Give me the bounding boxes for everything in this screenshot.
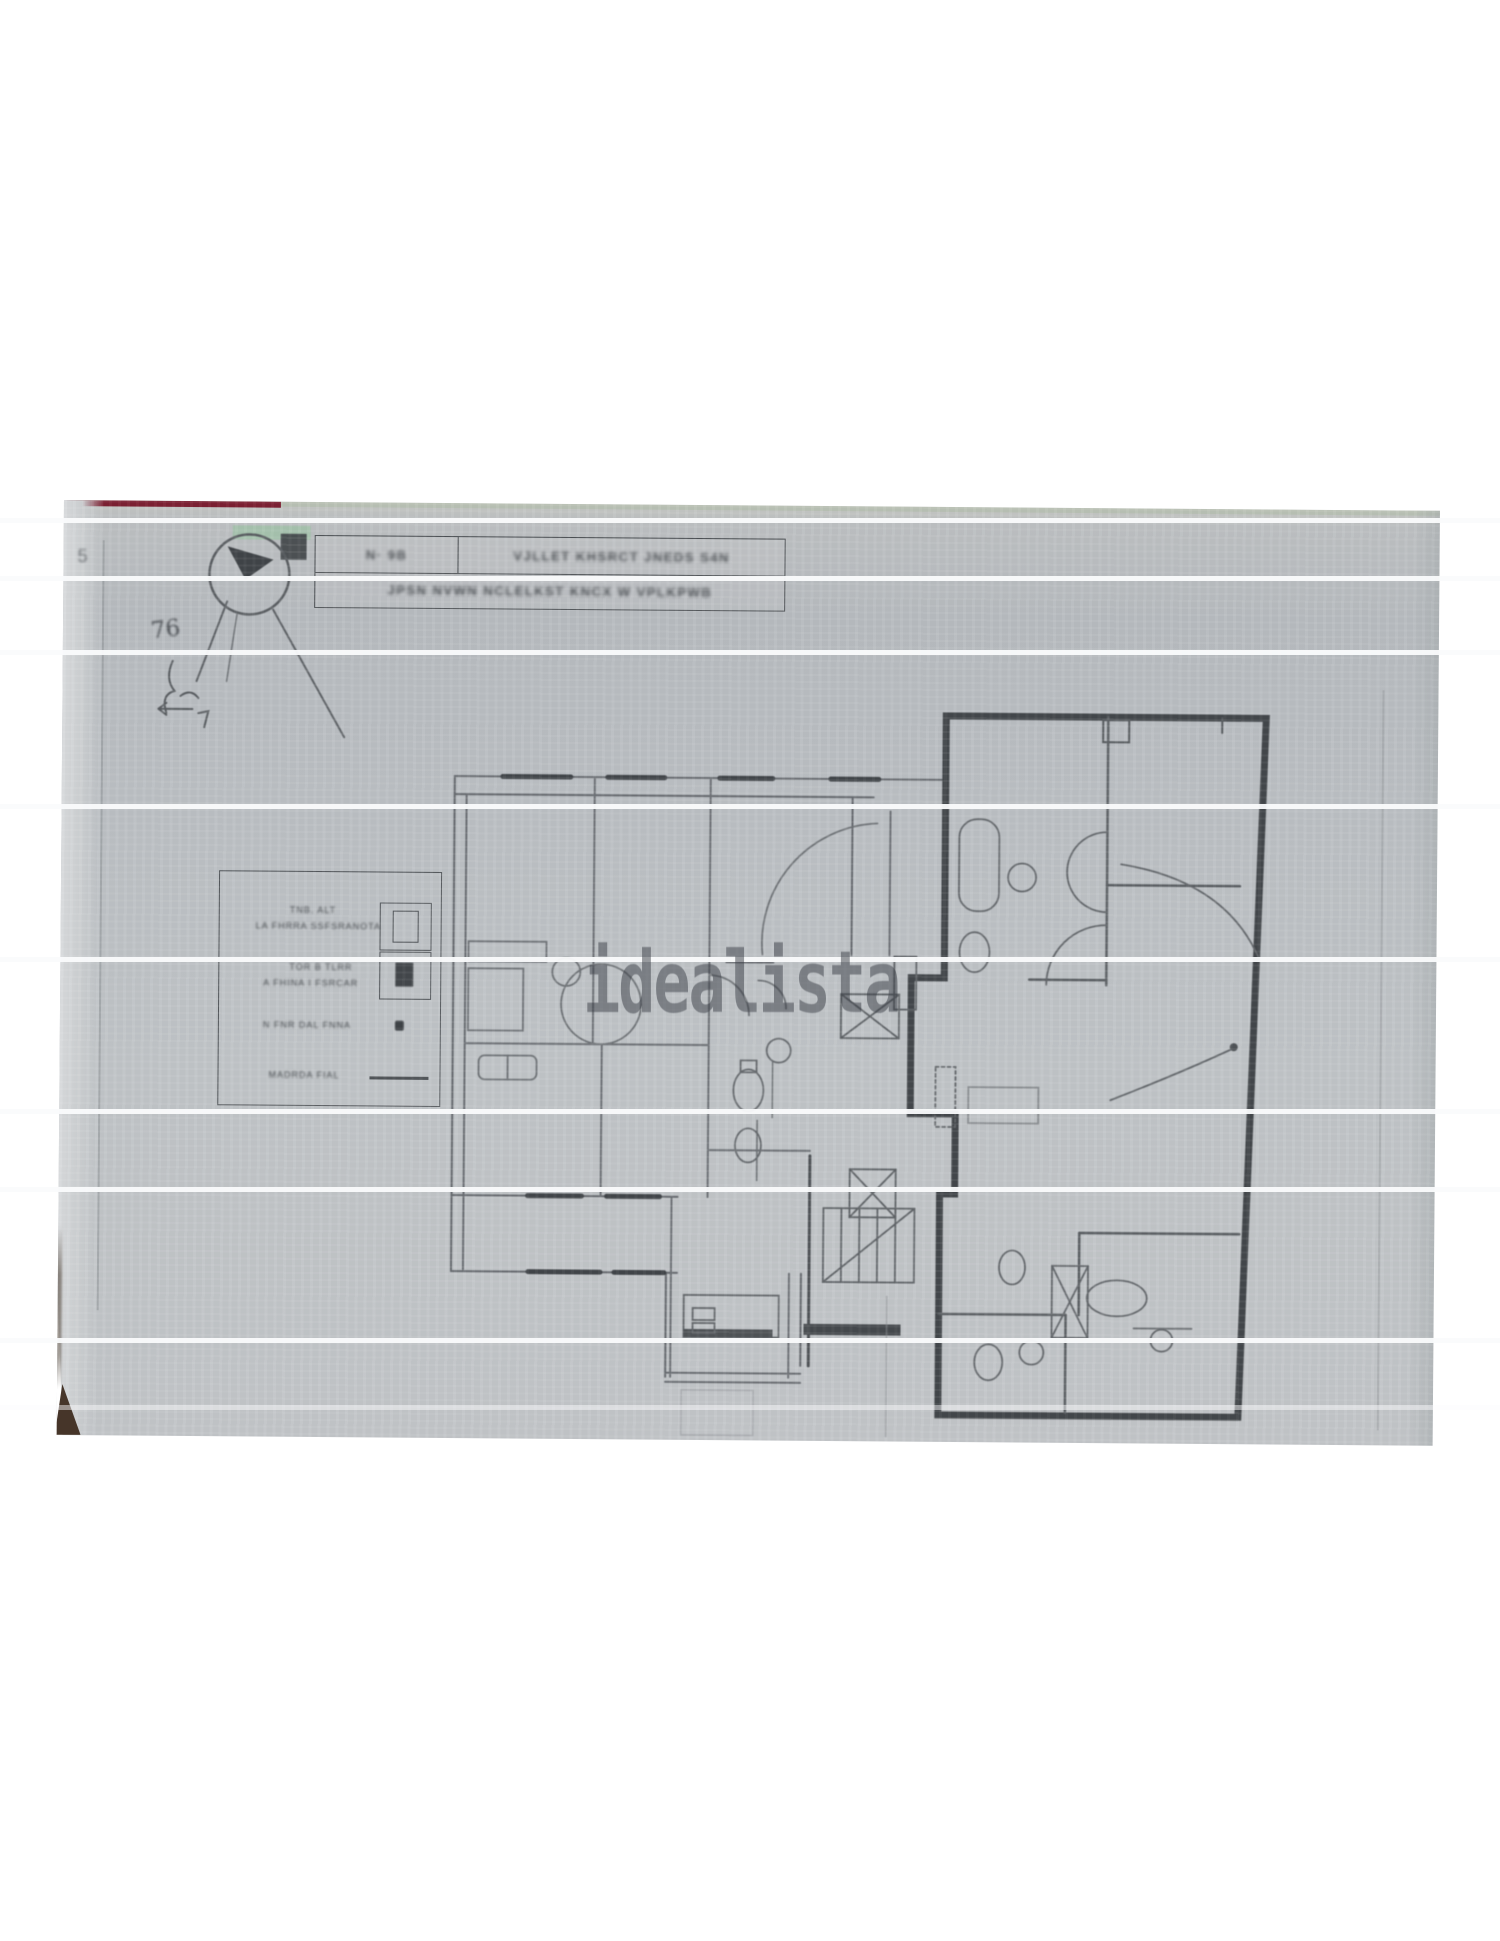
bottom-room-furniture <box>683 1295 778 1338</box>
title-block-number-cell: N· 9B <box>315 536 458 573</box>
scan-stripe-8 <box>0 1338 1500 1343</box>
idealista-watermark: idealista <box>583 933 899 1033</box>
scan-stripe-2 <box>0 576 1500 581</box>
title-block: N· 9B VJLLET KHSRCT JNEDS S4N JPSN NVWN … <box>314 535 786 612</box>
title-subtitle-text: JPSN NVWN NCLELKST KNCX W VPLKPWB <box>387 583 712 601</box>
line-icon <box>369 1076 428 1079</box>
title-number-text: N· 9B <box>366 547 408 562</box>
faint-lower-line <box>886 1296 887 1436</box>
scan-stripe-6 <box>0 1109 1500 1114</box>
legend-item-3-line1: N FNR DAL FNNA <box>263 1020 351 1031</box>
title-name-text: VJLLET KHSRCT JNEDS S4N <box>513 548 730 565</box>
block-bath-fixtures <box>933 819 1195 1382</box>
window-frame-icon <box>379 902 431 950</box>
staircase-grid <box>823 1208 915 1283</box>
listing-image-page: { "page": { "background": "#ffffff" }, "… <box>0 0 1500 1941</box>
lower-balcony-outline <box>681 1390 753 1436</box>
legend-item-2-line1: TOR B TLRR <box>289 962 352 972</box>
dot-icon <box>395 1021 404 1031</box>
scan-stripe-9 <box>0 1405 1500 1410</box>
scan-stripe-7 <box>0 1187 1500 1192</box>
block-arcs <box>1045 832 1259 1102</box>
legend-item-2-line2: A FHINA I FSRCAR <box>263 978 358 989</box>
title-block-name-cell: VJLLET KHSRCT JNEDS S4N <box>458 537 784 576</box>
legend-box: TNB. ALT LA FHRRA SSFSRANOTA TOR B TLRR … <box>217 870 442 1107</box>
scan-stripe-4 <box>0 804 1500 809</box>
scan-stripe-3 <box>0 650 1500 655</box>
handwritten-number: 76 <box>150 615 182 644</box>
legend-item-1-line1: TNB. ALT <box>290 905 336 915</box>
legend-item-1-line2: LA FHRRA SSFSRANOTA <box>256 921 381 932</box>
title-block-row1: N· 9B VJLLET KHSRCT JNEDS S4N <box>315 536 784 577</box>
scan-stripe-1 <box>0 518 1500 523</box>
legend-item-4-line1: MADRDA FIAL <box>268 1070 339 1081</box>
